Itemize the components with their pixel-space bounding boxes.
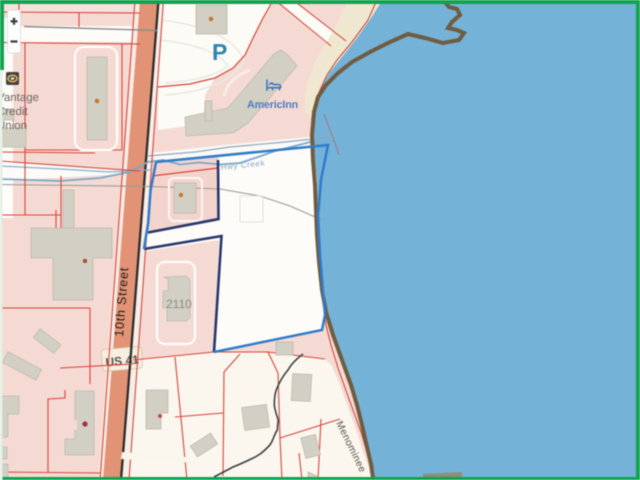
svg-text:2110: 2110 — [166, 297, 192, 311]
svg-text:P: P — [212, 39, 227, 65]
svg-text:Union: Union — [0, 120, 27, 132]
svg-text:AmericInn: AmericInn — [247, 99, 298, 111]
svg-text:Credit: Credit — [0, 106, 28, 118]
svg-text:US 41: US 41 — [105, 352, 140, 369]
svg-text:Vantage: Vantage — [0, 92, 39, 104]
